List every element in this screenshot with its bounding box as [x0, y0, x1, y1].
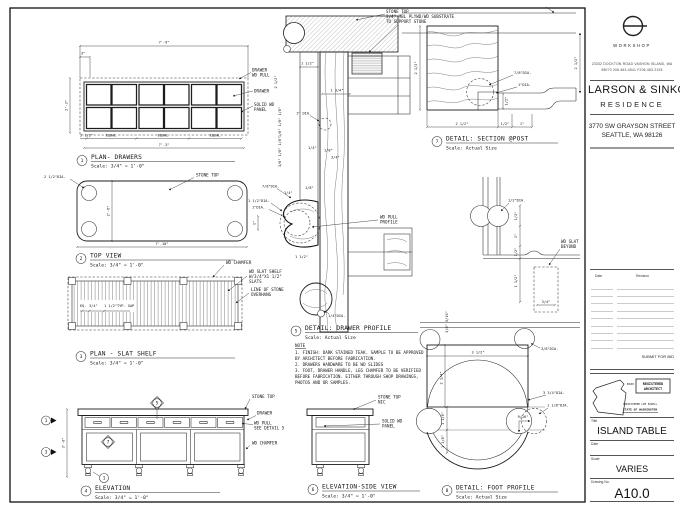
view-scale: Scale: 3/4" = 1'-0"	[90, 263, 144, 269]
revision-entries-column	[617, 282, 674, 352]
date-field-label: Date	[591, 442, 598, 446]
view-scale: Scale: Actual Size	[446, 145, 497, 151]
note-line: 2. DRAWERS HARDWARE TO BE WD SLIDES	[295, 362, 384, 367]
section-marker: 3	[45, 450, 48, 456]
project-address: SEATTLE, WA 98126	[588, 132, 676, 140]
dim-label: 1 3/4"	[331, 89, 344, 93]
note-line: 3. FOOT, DRAWER HANDLE, LEG CHAMFER TO B…	[295, 368, 422, 373]
view-scale: Scale: 3/4" = 1'-0"	[95, 495, 149, 501]
scale-field-label: Scale	[591, 457, 599, 461]
dim-label: EQUAL	[158, 134, 169, 138]
view-title: PLAN - SLAT SHELF	[90, 351, 157, 358]
dim-label: 7'-9"	[159, 41, 170, 45]
dim-label: 1 1/8"	[441, 412, 445, 425]
view-scale: Scale: 3/4" = 1'-0"	[322, 493, 376, 499]
sheet-title: ISLAND TABLE	[588, 426, 676, 437]
dim-label: 3/4"	[542, 300, 551, 304]
dim-label: 1 1/2"	[295, 255, 308, 259]
dim-label: 7/8"DIA.	[514, 71, 531, 75]
stamp-number: 8029	[627, 382, 634, 386]
view-number: 7	[436, 139, 439, 145]
dim-label: 3 1/2"	[472, 351, 485, 355]
dim-label: 3'-0"	[62, 438, 66, 449]
label-overhang: OVERHANG	[251, 292, 272, 297]
view-title: PLAN- DRAWERS	[91, 154, 142, 161]
dim-label: 1" DIA.	[296, 112, 311, 116]
view-number: 4	[85, 489, 88, 495]
note-line: BY ARCHITECT BEFORE FABRICATION.	[295, 356, 376, 361]
section-marker: 1	[45, 418, 48, 424]
dim-label: 3/4"	[331, 156, 340, 160]
view-title: TOP VIEW	[90, 253, 121, 260]
revision-header: Revision	[636, 274, 649, 278]
view-elevation: 3'-0" 1 3 5 7 1 STONE TOP DRAWER WD PULL…	[42, 394, 285, 501]
label-substrate: TO SUPPORT STONE	[386, 19, 427, 24]
dim-label: 1/2"DIA.	[508, 199, 525, 203]
label-chamfer: WD CHAMFER	[226, 260, 252, 265]
note-line: BEFORE FABRICATION. EITHER THROUGH SHOP …	[295, 374, 419, 379]
dim-label: 1/2"	[514, 212, 518, 221]
dim-label: 7'-10"	[156, 242, 169, 246]
dim-label: EQUAL	[210, 134, 221, 138]
note-line: PHOTOS AND OR SAMPLES.	[295, 380, 350, 385]
label-drawer: DRAWER	[254, 89, 270, 94]
label-solid-panel: PANEL	[254, 107, 267, 112]
number-field-label: Drawing No.	[591, 480, 610, 484]
dim-label: 1 1/2"TYP. GAP	[104, 304, 134, 308]
title-block: WORKSHOP 23332 DOCKTON ROAD VASHON ISLAN…	[588, 0, 676, 510]
dim-label: 1 1/2"	[301, 62, 314, 66]
dim-label: 1 1/2"DIA.	[248, 199, 270, 203]
label-pull: SEE DETAIL 5	[254, 426, 285, 431]
dim-label: 1"	[253, 221, 257, 225]
note-title: NOTE	[295, 343, 306, 348]
view-title: DETAIL: FOOT PROFILE	[456, 485, 535, 492]
note-block: NOTE 1. FINISH: DARK STAINED TEAK. SAMPL…	[295, 343, 424, 385]
view-scale: Scale: Actual Size	[456, 494, 507, 500]
view-number: 1	[81, 158, 84, 164]
title-field-label: Title	[591, 419, 597, 423]
revision-date-header: Date	[595, 274, 602, 278]
label-solid-panel: PANEL	[382, 424, 395, 429]
detail-marker: 1	[103, 476, 106, 482]
view-side-elevation: STONE TOP NIC SOLID WD PANEL 6 ELEVATION…	[307, 395, 420, 500]
label-stone-top: STONE TOP	[196, 173, 219, 178]
label-drawer: DRAWER	[257, 411, 273, 416]
dim-label: EQ.	[80, 304, 87, 308]
view-number: 2	[80, 256, 83, 262]
dim-label: 3/8" 5/16"	[445, 311, 449, 333]
dim-label: 1"DIA.	[518, 83, 531, 87]
dim-label: 1/2"	[501, 122, 510, 126]
view-section-post: 2 1/2" 2 1/2" 2 1/2" 1/2" 1" 7/8"DIA. 1"…	[402, 7, 580, 151]
stamp-registered: REGISTERED	[643, 382, 663, 386]
firm-name: WORKSHOP	[588, 43, 676, 48]
label-chamfer: WD CHAMFER	[252, 441, 278, 446]
note-line: 1. FINISH: DARK STAINED TEAK. SAMPLE TO …	[295, 350, 424, 355]
firm-address: 98070 206.463.4541 F206.463.2193	[588, 68, 676, 72]
dim-label: 1/2"	[505, 97, 509, 106]
dim-label: 2 1/2"	[574, 57, 578, 70]
view-number: 5	[295, 329, 298, 335]
dim-label: 1 1/8"DIA.	[547, 404, 569, 408]
detail-marker: 7	[107, 440, 110, 446]
firm-address: 23332 DOCKTON ROAD VASHON ISLAND, WA	[588, 62, 676, 66]
dim-label: 1/4"	[284, 191, 293, 195]
dim-label: 1 1/2"	[514, 275, 518, 288]
dim-label: 1"DIA.	[252, 206, 265, 210]
dim-label: 2 1/2"	[414, 62, 418, 75]
view-scale: Scale: 3/4" = 1'-0"	[91, 164, 145, 170]
view-title: DETAIL: SECTION @POST	[446, 136, 529, 143]
dim-label: 2 1/4"	[440, 372, 444, 385]
drawing-area: 7'-9" 3" 2'-3" 2 1/2" EQUAL EQUAL EQUAL …	[0, 0, 680, 510]
view-scale: Scale: Actual Size	[305, 335, 356, 341]
dim-label: 1 1/8"	[441, 435, 445, 448]
view-number: 6	[312, 487, 315, 493]
stamp-architect: ARCHITECT	[644, 387, 662, 391]
view-slat-shelf: EQ. 3/4" 1 1/2"TYP. GAP WD CHAMFER WD SL…	[68, 260, 284, 367]
stamp-state: STATE OF WASHINGTON	[623, 408, 658, 412]
view-top-view: 2 1/2"DIA. STONE TOP 2'-6" 7'-10" 2 TOP …	[44, 173, 247, 269]
detail-marker: 5	[156, 401, 159, 407]
dim-label: 1"	[520, 122, 524, 126]
dim-label: 2'-6"	[107, 206, 111, 217]
view-number: 3	[80, 354, 83, 360]
submit-for-bid-entry: SUBMIT FOR BID	[617, 354, 674, 359]
dim-label: 2 1/2"	[456, 122, 469, 126]
sheet-number: A10.0	[588, 486, 676, 501]
dim-label: 7/8"DIA.	[262, 185, 279, 189]
dim-label: 2 1/2"	[80, 134, 93, 138]
view-number: 8	[446, 488, 449, 494]
label-pull-profile: PROFILE	[380, 220, 398, 225]
label-slat-beyond: BEYOND	[561, 244, 577, 249]
view-title: ELEVATION	[95, 485, 130, 492]
dim-label: 1/2"	[514, 248, 518, 257]
view-title: ELEVATION-SIDE VIEW	[322, 484, 397, 491]
stamp-name: CHRISTOPHER LEE EZZELL	[623, 402, 658, 406]
dim-label: EQUAL	[106, 134, 117, 138]
dim-label: 7'-3"	[159, 143, 170, 147]
dim-label: 2 1/2"DIA.	[44, 175, 66, 179]
workshop-logo-icon	[588, 10, 676, 42]
dim-label: 3"	[81, 52, 85, 56]
client-subtitle: RESIDENCE	[588, 100, 676, 109]
dim-label: 2 1/2"	[274, 76, 278, 89]
dim-label: 1/8"	[324, 149, 333, 153]
view-title: DETAIL: DRAWER PROFILE	[305, 325, 391, 332]
view-plan-drawers: 7'-9" 3" 2'-3" 2 1/2" EQUAL EQUAL EQUAL …	[65, 41, 275, 170]
dim-label: 1"	[514, 234, 518, 238]
architect-stamp: 8029 REGISTERED ARCHITECT CHRISTOPHER LE…	[588, 375, 676, 417]
dim-label: 3 3/4"DIA.	[543, 391, 565, 395]
dim-label: 3/4"	[89, 304, 98, 308]
client-name: LARSON & SINKO	[588, 84, 676, 96]
dim-label: 1/4"	[308, 146, 317, 150]
label-stone-top: STONE TOP	[252, 394, 275, 399]
dim-label: 1/8"	[305, 186, 314, 190]
dim-label: 1/4"DIA.	[328, 314, 345, 318]
dim-label: 1/8" 1/8" 1/8"	[278, 107, 282, 137]
sheet-scale: VARIES	[588, 464, 676, 474]
view-scale: Scale: 3/4" = 1'-0"	[90, 361, 144, 367]
dim-label: 2'-3"	[65, 100, 69, 111]
dim-label: 3/8"DIA.	[541, 347, 558, 351]
project-address: 3770 SW GRAYSON STREET	[588, 123, 676, 131]
revision-date-column	[591, 282, 613, 352]
dim-label: 9/16"	[518, 415, 529, 419]
label-slat: SLATS	[249, 279, 262, 284]
label-stone-top: NIC	[378, 400, 386, 405]
view-foot-profile: 1/2"DIA. 1/2" 1" 1/2" 1 1/2" 3/4" WD SLA…	[416, 177, 580, 500]
label-drawer-pull: WD PULL	[252, 73, 270, 78]
dim-label: 3/8" 1/8" 1/8"	[278, 137, 282, 167]
drawing-sheet: 7'-9" 3" 2'-3" 2 1/2" EQUAL EQUAL EQUAL …	[0, 0, 680, 510]
